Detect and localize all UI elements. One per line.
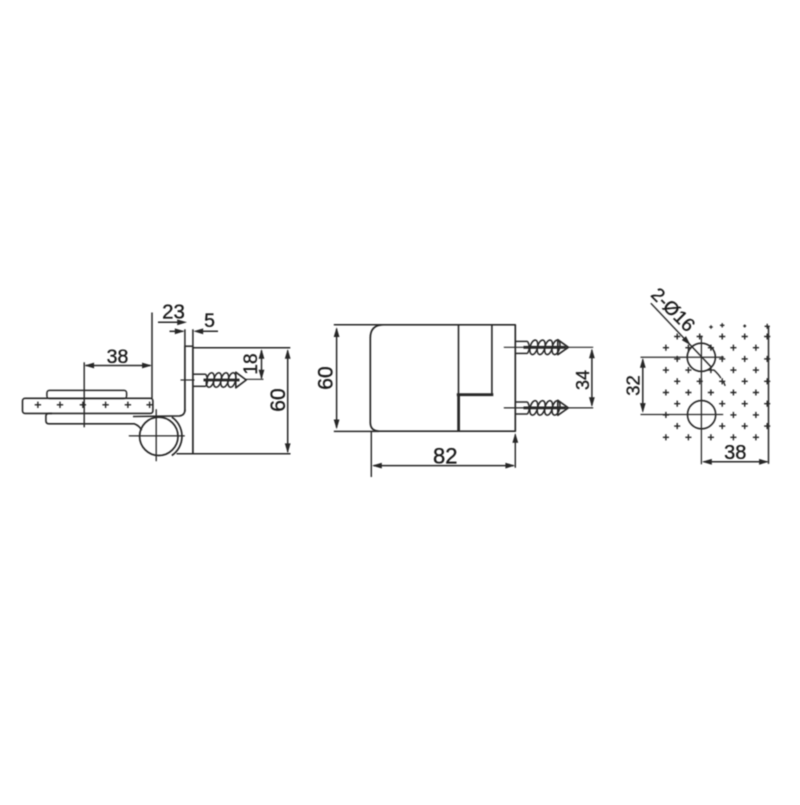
svg-text:60: 60 bbox=[267, 388, 290, 411]
svg-text:34: 34 bbox=[573, 370, 593, 390]
svg-text:23: 23 bbox=[162, 301, 185, 324]
svg-text:5: 5 bbox=[204, 310, 215, 332]
svg-text:38: 38 bbox=[724, 442, 746, 464]
svg-text:32: 32 bbox=[623, 375, 644, 396]
svg-text:38: 38 bbox=[107, 346, 129, 368]
svg-text:18: 18 bbox=[241, 353, 262, 374]
svg-text:2-Ø16: 2-Ø16 bbox=[646, 284, 698, 336]
svg-text:82: 82 bbox=[433, 444, 457, 469]
svg-text:60: 60 bbox=[315, 366, 338, 389]
